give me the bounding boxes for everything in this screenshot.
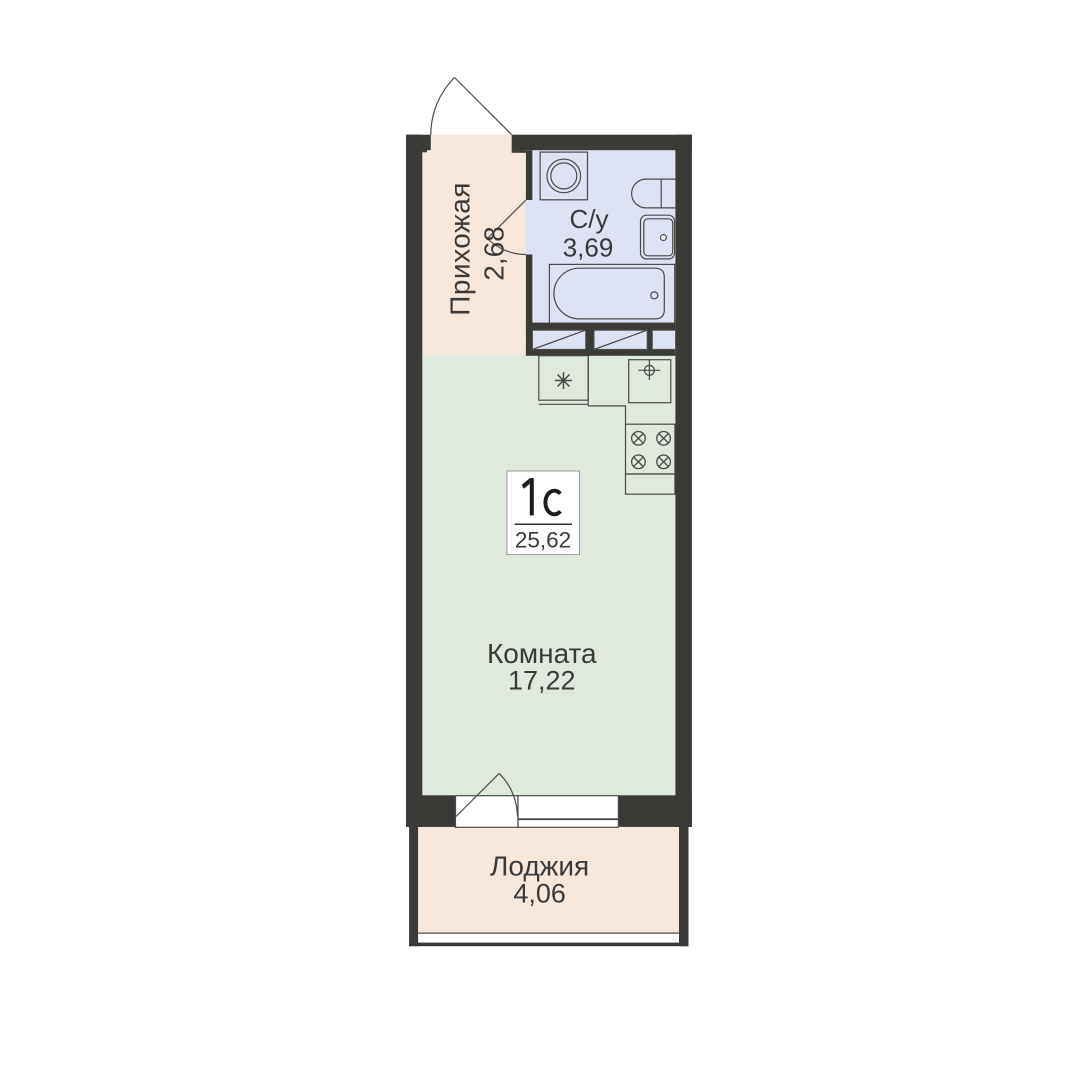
svg-text:3,69: 3,69 (563, 233, 614, 263)
svg-text:17,22: 17,22 (508, 665, 576, 695)
svg-text:2,68: 2,68 (479, 226, 510, 281)
svg-text:4,06: 4,06 (513, 878, 566, 908)
svg-text:Прихожая: Прихожая (445, 182, 476, 316)
svg-text:25,62: 25,62 (515, 527, 571, 552)
svg-text:Лоджия: Лоджия (490, 850, 589, 881)
svg-text:Комната: Комната (487, 638, 597, 669)
svg-text:С/у: С/у (570, 204, 609, 234)
